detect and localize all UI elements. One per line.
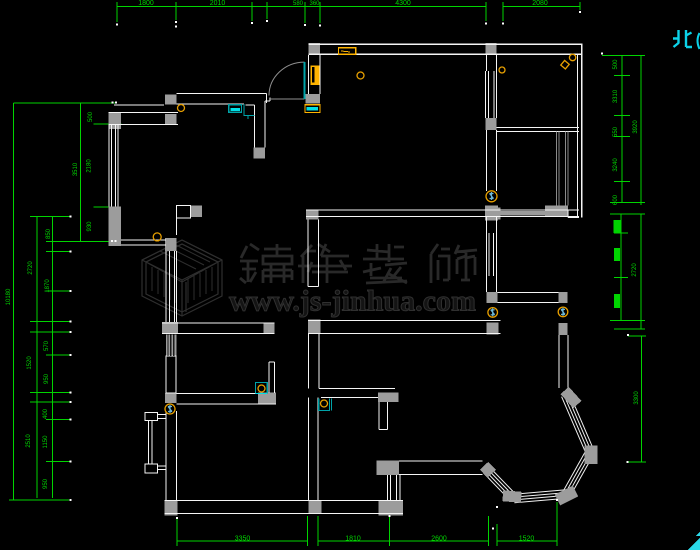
svg-text:1810: 1810 <box>345 536 361 543</box>
svg-text:360: 360 <box>309 1 320 7</box>
svg-text:4300: 4300 <box>395 0 411 7</box>
svg-text:850: 850 <box>46 228 52 239</box>
svg-text:1520: 1520 <box>27 356 33 370</box>
svg-text:2180: 2180 <box>87 159 93 173</box>
svg-text:400: 400 <box>43 408 49 419</box>
svg-text:2080: 2080 <box>532 0 548 7</box>
svg-text:500: 500 <box>613 59 619 70</box>
svg-text:500: 500 <box>88 111 94 122</box>
svg-text:550: 550 <box>613 126 619 137</box>
svg-text:950: 950 <box>43 478 49 489</box>
svg-text:3510: 3510 <box>73 162 79 176</box>
svg-text:2010: 2010 <box>210 0 226 7</box>
svg-text:3350: 3350 <box>235 536 251 543</box>
svg-text:930: 930 <box>87 221 93 232</box>
svg-text:3920: 3920 <box>633 120 639 134</box>
svg-text:1520: 1520 <box>519 536 535 543</box>
svg-text:1150: 1150 <box>43 435 49 449</box>
svg-text:1870: 1870 <box>45 279 51 293</box>
svg-text:2510: 2510 <box>26 434 32 448</box>
svg-text:www.js-jinhua.com: www.js-jinhua.com <box>229 285 476 318</box>
svg-text:1800: 1800 <box>138 0 154 7</box>
svg-text:3240: 3240 <box>613 158 619 172</box>
svg-text:580: 580 <box>293 1 304 7</box>
svg-text:570: 570 <box>44 340 50 351</box>
svg-text:3310: 3310 <box>613 89 619 103</box>
svg-text:10180: 10180 <box>6 288 12 305</box>
svg-text:2720: 2720 <box>28 261 34 275</box>
svg-text:3300: 3300 <box>634 391 640 405</box>
svg-text:950: 950 <box>44 373 50 384</box>
svg-text:2600: 2600 <box>431 536 447 543</box>
svg-text:600: 600 <box>613 194 619 205</box>
svg-text:2720: 2720 <box>632 263 638 277</box>
